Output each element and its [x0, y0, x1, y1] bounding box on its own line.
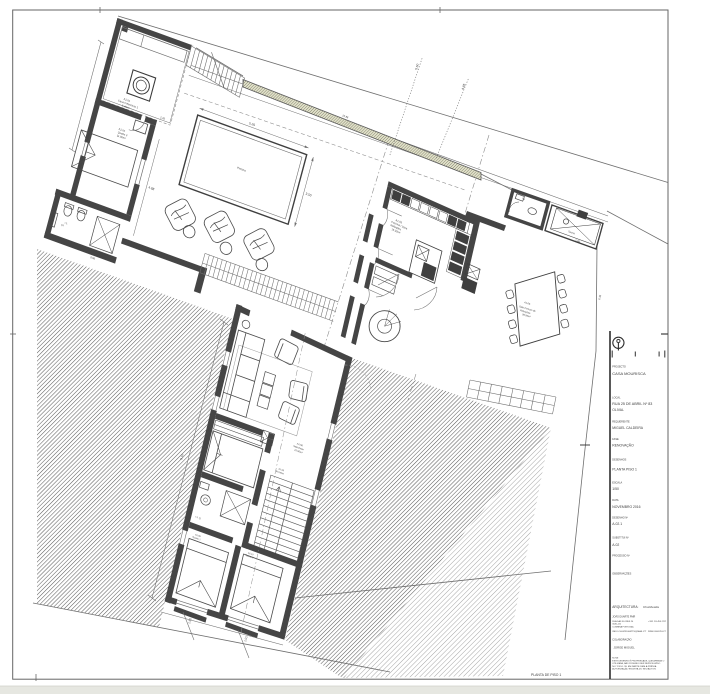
svg-text:PROJECTO: PROJECTO: [612, 366, 626, 369]
svg-text:JOÃO DUARTE PMR: JOÃO DUARTE PMR: [612, 616, 635, 619]
svg-text:DESENHOS: DESENHOS: [612, 459, 626, 462]
svg-text:ESTE DESENHO É PROPRIEDADE, QU: ESTE DESENHO É PROPRIEDADE, QUE APENAS O: [612, 659, 664, 662]
svg-text:MIGUEL CALDEIRA: MIGUEL CALDEIRA: [612, 426, 644, 430]
svg-text:PLANTA PISO 1: PLANTA PISO 1: [612, 468, 637, 472]
svg-text:ARQUITECTURA:: ARQUITECTURA:: [612, 605, 638, 609]
svg-text:PLANTA DE PISO 1: PLANTA DE PISO 1: [531, 673, 561, 677]
svg-text:COLABORAÇÃO: COLABORAÇÃO: [612, 639, 631, 642]
svg-text:INFO.CHUZZLEWITS@MAIL.PT: INFO.CHUZZLEWITS@MAIL.PT: [612, 630, 647, 633]
svg-text:+351 93 456 787: +351 93 456 787: [648, 621, 667, 623]
svg-text:DATA: DATA: [612, 499, 619, 502]
svg-text:SUBSTITUI Nº: SUBSTITUI Nº: [612, 536, 629, 540]
svg-text:UTILIZARÁ, NÃO PODENDO SER REP: UTILIZARÁ, NÃO PODENDO SER REPRODUZIDO: [612, 662, 660, 665]
svg-text:NOTA:: NOTA:: [612, 657, 619, 660]
svg-text:CASA MOURISCA: CASA MOURISCA: [612, 371, 646, 376]
svg-text:DESENHO Nº: DESENHO Nº: [612, 516, 628, 520]
svg-text:OLIVAL: OLIVAL: [612, 408, 624, 412]
svg-text:REQUERENTE: REQUERENTE: [612, 421, 630, 424]
svg-text:A.02: A.02: [612, 543, 619, 547]
svg-text:PROCESSO Nº: PROCESSO Nº: [612, 554, 630, 558]
svg-text:AUTORIZAÇÃO ESCRITA DO SEU AUT: AUTORIZAÇÃO ESCRITA DO SEU AUTOR.: [612, 668, 656, 671]
svg-text:ESCALA: ESCALA: [612, 482, 622, 485]
svg-text:COIMBRA PORTUGAL: COIMBRA PORTUGAL: [612, 625, 634, 628]
svg-text:LOCAL: LOCAL: [612, 397, 621, 400]
svg-text:RUA 25 DE ABRIL Nº 83: RUA 25 DE ABRIL Nº 83: [612, 402, 652, 406]
svg-text:NO TODO OU EM PARTE SEM A PRÉV: NO TODO OU EM PARTE SEM A PRÉVIA: [612, 665, 657, 668]
svg-text:A.02.1: A.02.1: [612, 522, 622, 526]
svg-text:1/50: 1/50: [612, 487, 619, 491]
svg-text:WWW.CHUZZLE.PT: WWW.CHUZZLE.PT: [648, 631, 667, 633]
svg-text:NOVEMBRO 2016: NOVEMBRO 2016: [612, 505, 640, 509]
svg-text:RUA DAS FLORES 24: RUA DAS FLORES 24: [612, 620, 634, 623]
svg-text:FASE: FASE: [612, 438, 619, 441]
svg-text:RENOVAÇÃO: RENOVAÇÃO: [612, 443, 634, 448]
svg-text:Chuzzlewits: Chuzzlewits: [643, 605, 660, 609]
svg-text:3040-121: 3040-121: [612, 624, 622, 626]
svg-text:OBSERVAÇÕES: OBSERVAÇÕES: [612, 573, 631, 576]
svg-text:JORGE MIGUEL: JORGE MIGUEL: [614, 646, 636, 650]
